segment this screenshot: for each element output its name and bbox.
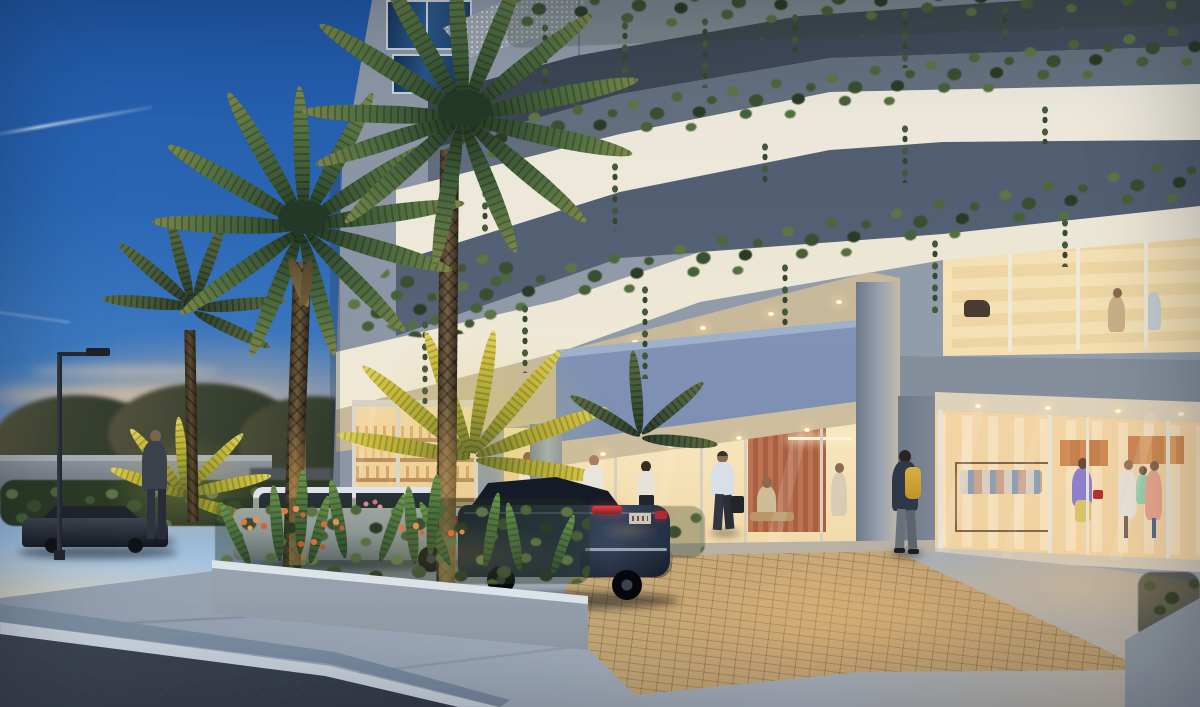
scene-canvas: [0, 0, 1200, 707]
vignette: [0, 0, 1200, 707]
